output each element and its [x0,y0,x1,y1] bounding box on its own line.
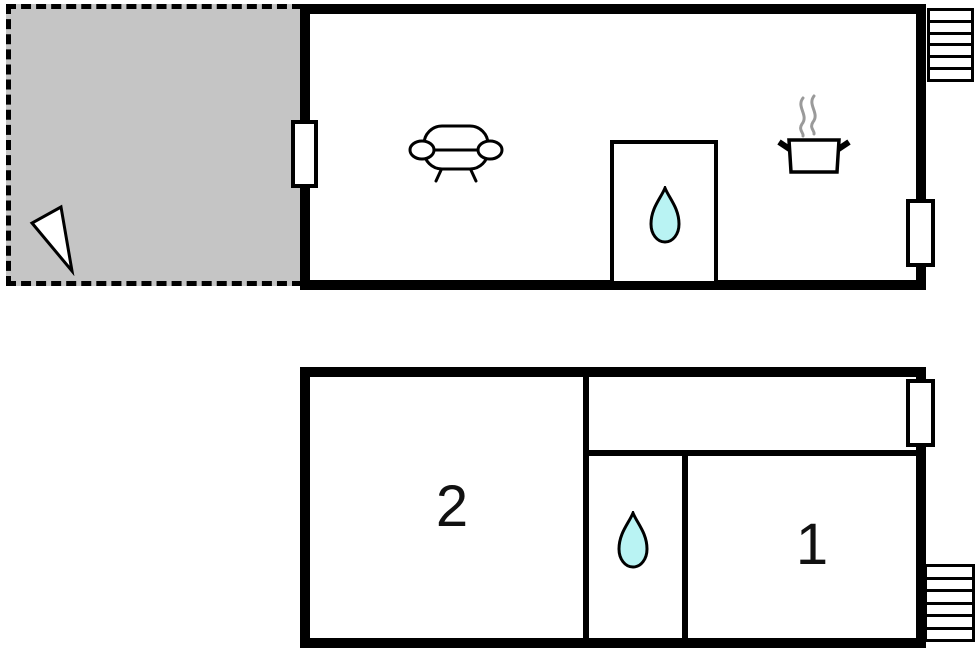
stair-step [930,58,971,70]
interior-wall [583,377,589,638]
stair-step [927,630,972,640]
sofa-icon [408,122,504,184]
door-icon [291,120,318,188]
interior-wall [682,456,688,638]
stairs-icon [924,564,975,642]
stair-step [930,11,971,23]
stair-step [930,35,971,47]
water-drop-icon [616,511,650,569]
stair-step [927,617,972,630]
stair-step [927,592,972,605]
stair-step [927,580,972,593]
floorplan-canvas: 2 1 [0,0,976,652]
stair-step [930,23,971,35]
upper-bathroom [610,140,718,281]
interior-wall [589,450,916,456]
stairs-icon [927,8,974,82]
stair-step [930,70,971,79]
stair-step [930,46,971,58]
north-arrow-icon [29,204,79,276]
stair-step [927,605,972,618]
terrace-area [6,4,302,286]
room-1-label: 1 [760,510,864,580]
water-drop-icon [648,186,682,244]
window-icon [906,379,935,447]
steam-lines [801,96,816,136]
room-2-label: 2 [400,472,504,542]
lower-floor-walls [300,367,926,648]
stair-step [927,567,972,580]
cooking-pot-icon [776,92,852,176]
window-icon [906,199,935,267]
